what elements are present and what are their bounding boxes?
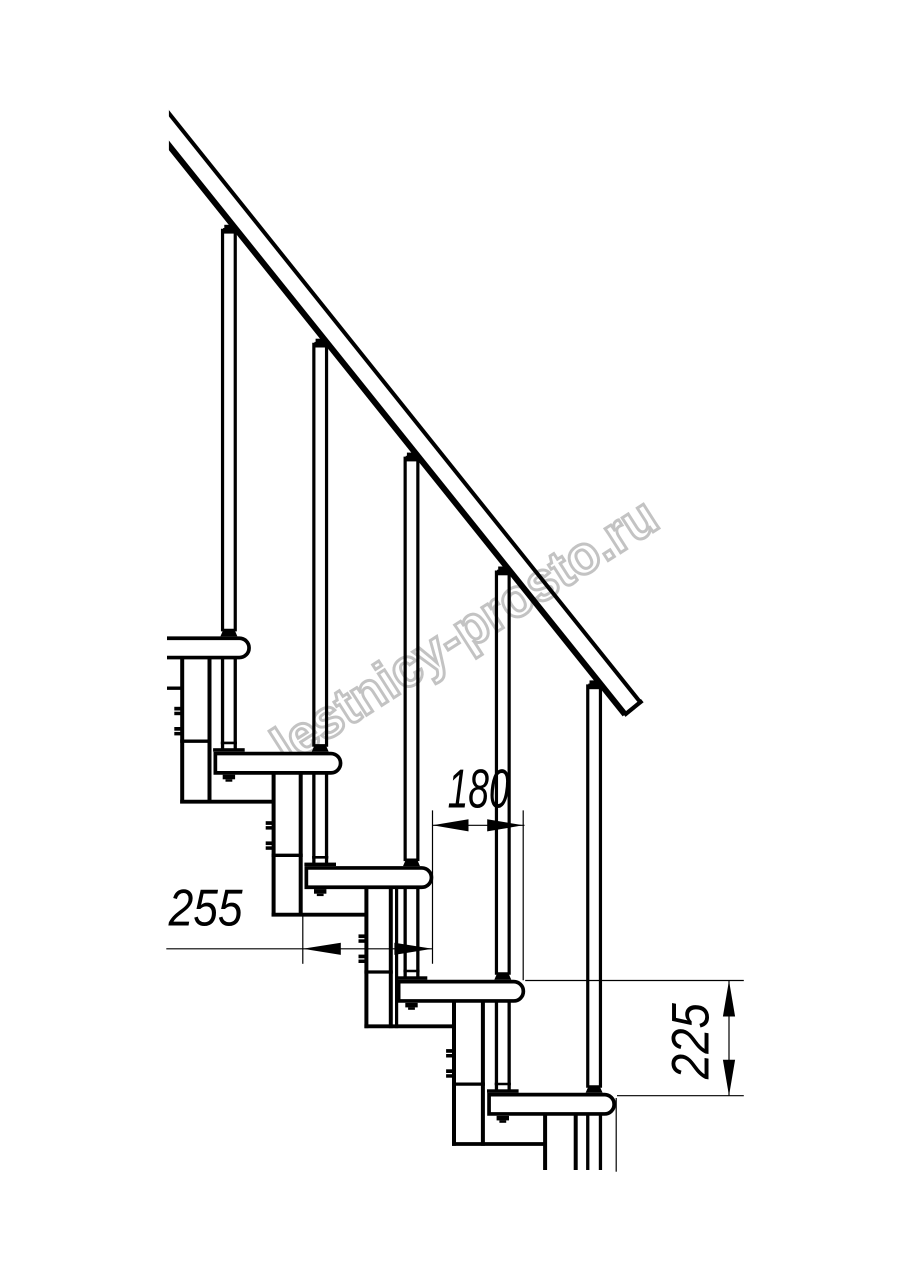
svg-text:255: 255 (168, 880, 244, 938)
svg-text:180: 180 (448, 757, 510, 819)
svg-text:225: 225 (662, 1003, 721, 1080)
